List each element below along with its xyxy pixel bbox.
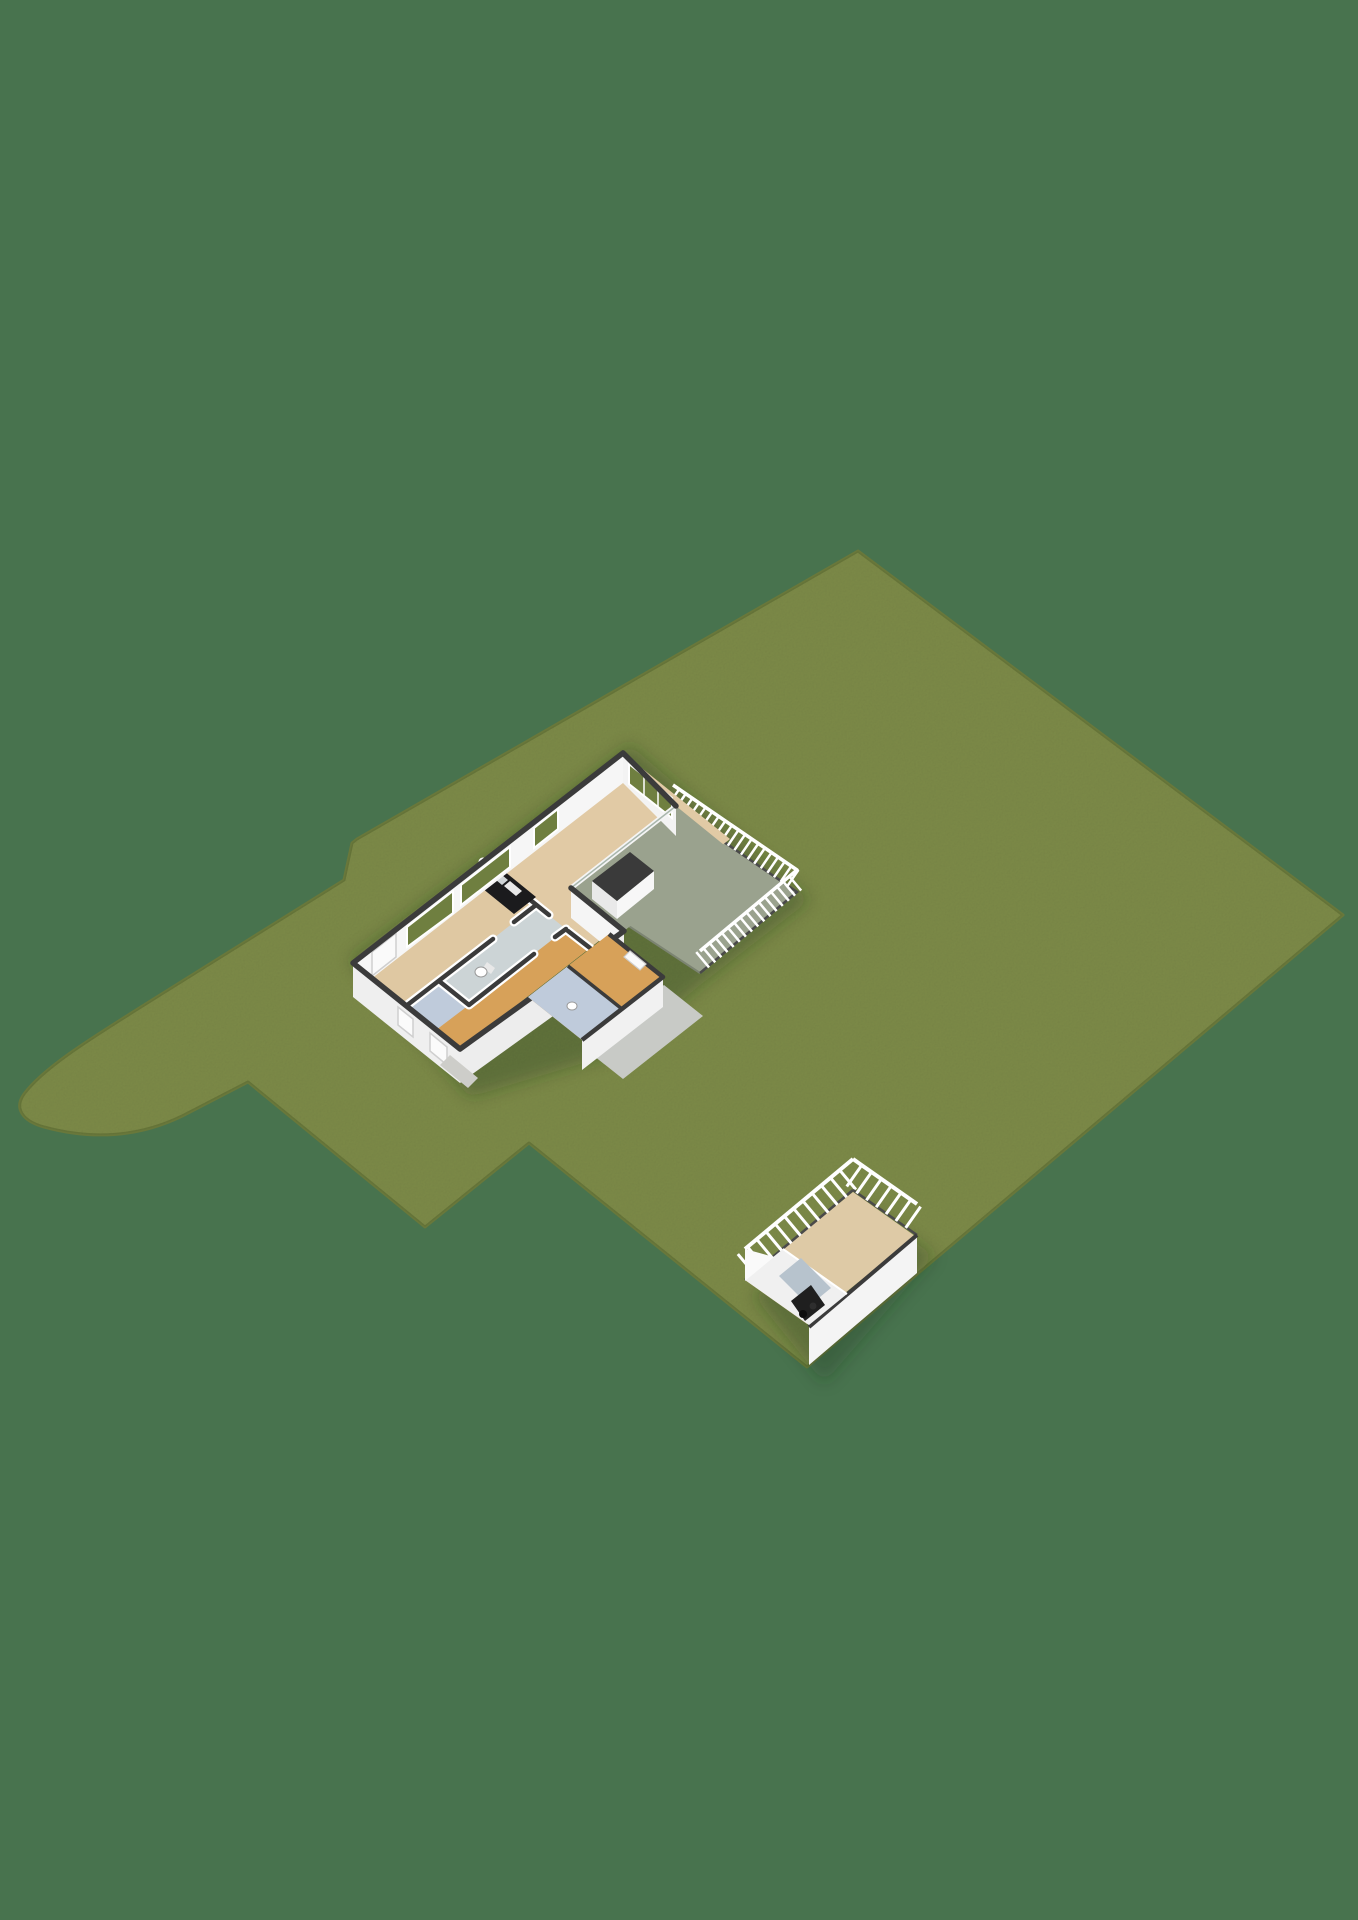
stored-object-2 [810, 1303, 817, 1310]
extension-toilet [567, 1002, 577, 1010]
floorplan-viewport[interactable] [0, 0, 1358, 1920]
toilet-bowl [475, 967, 487, 977]
stored-object-1 [799, 1310, 807, 1318]
site-plan-render [0, 0, 1358, 1920]
